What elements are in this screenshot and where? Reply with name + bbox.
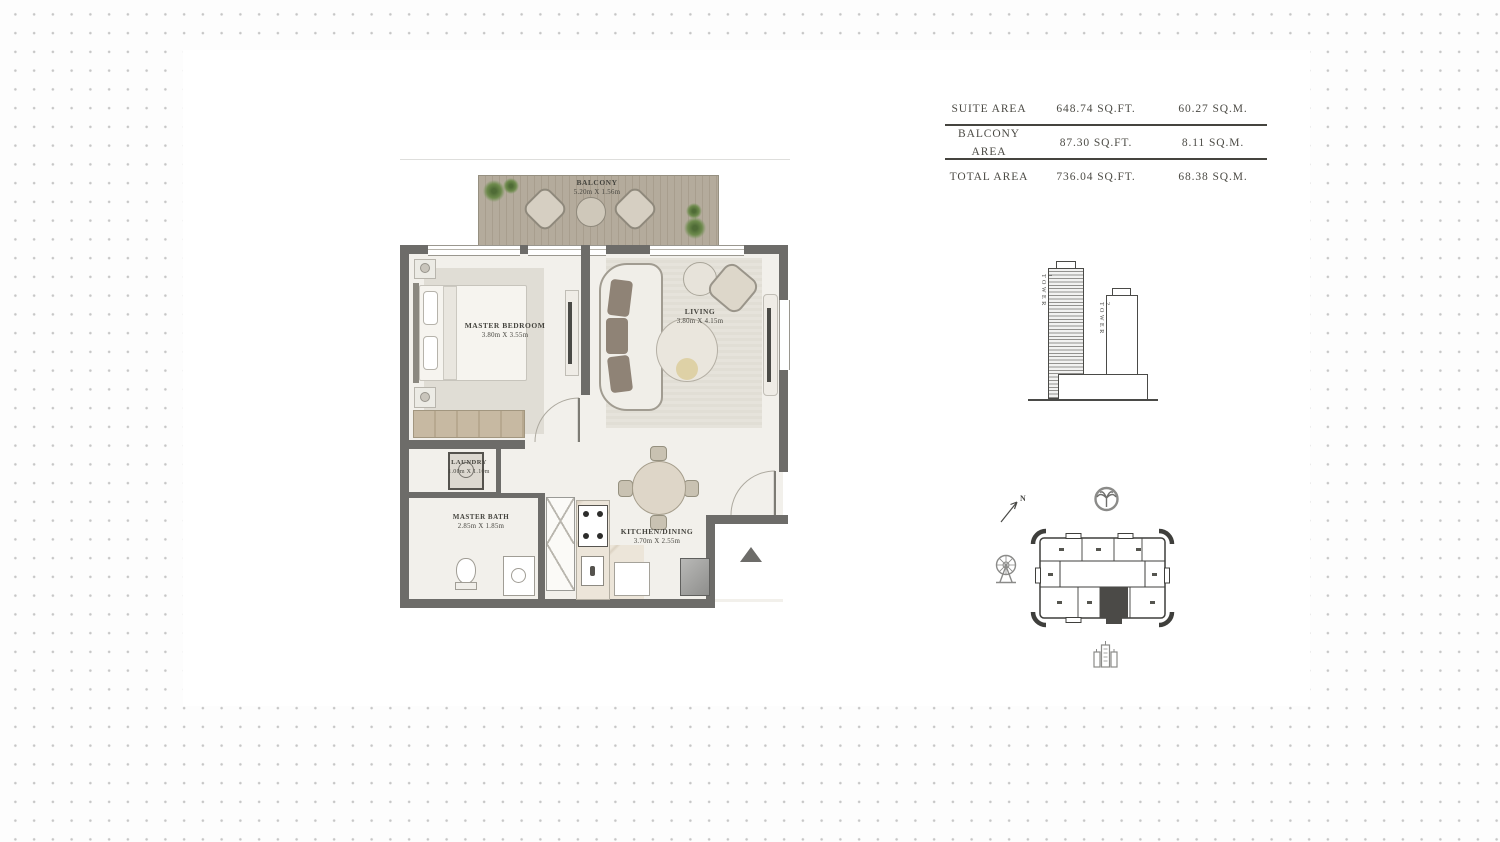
- wall-entry-top: [706, 515, 788, 524]
- room-dims: 3.80m X 3.55m: [465, 331, 546, 340]
- wash-basin: [511, 568, 526, 583]
- wall-left: [400, 245, 409, 608]
- bed-throw: [443, 286, 457, 380]
- shower: [546, 497, 575, 591]
- door-arc: [534, 397, 580, 443]
- dining-chair: [684, 480, 699, 497]
- room-dims: 3.70m X 2.55m: [621, 537, 693, 546]
- plant: [483, 180, 505, 202]
- room-name: BALCONY: [576, 178, 617, 187]
- area-sqm: 60.27 SQ.M.: [1178, 103, 1247, 115]
- stove-burner: [583, 511, 589, 517]
- master-bath-label: MASTER BATH 2.85m X 1.85m: [453, 513, 510, 532]
- table-lamp: [420, 263, 430, 273]
- room-name: LAUNDRY: [451, 459, 487, 466]
- toilet: [456, 558, 476, 584]
- wall-bath-top: [409, 493, 545, 498]
- room-name: LIVING: [685, 307, 716, 316]
- pillow: [423, 336, 438, 370]
- area-sqft: 648.74 SQ.FT.: [1056, 103, 1135, 115]
- master-bedroom-label: MASTER BEDROOM 3.80m X 3.55m: [465, 321, 546, 340]
- room-name: MASTER BATH: [453, 513, 510, 521]
- area-sqft: 736.04 SQ.FT.: [1056, 171, 1135, 183]
- room-dims: 1.00m X 1.10m: [448, 468, 490, 476]
- table-lamp: [420, 392, 430, 402]
- dining-chair: [650, 446, 667, 461]
- sofa-cushion: [606, 318, 628, 354]
- room-dims: 5.20m X 1.56m: [574, 188, 621, 197]
- coffee-table-accent: [676, 358, 698, 380]
- table-row: SUITE AREA 648.74 SQ.FT. 60.27 SQ.M.: [945, 92, 1267, 124]
- building-icon: [1092, 639, 1118, 669]
- room-name: MASTER BEDROOM: [465, 321, 546, 330]
- room-dims: 3.80m X 4.15m: [677, 317, 724, 326]
- kitchen-cabinet: [614, 562, 650, 596]
- north-label: N: [1020, 494, 1026, 503]
- area-table: SUITE AREA 648.74 SQ.FT. 60.27 SQ.M. BAL…: [945, 92, 1267, 192]
- pillow: [423, 291, 438, 325]
- wall-bedroom-bottom: [400, 440, 525, 449]
- window: [428, 245, 520, 256]
- table-row: BALCONY AREA 87.30 SQ.FT. 8.11 SQ.M.: [945, 126, 1267, 158]
- kitchen-dining-label: KITCHEN/DINING 3.70m X 2.55m: [621, 527, 693, 546]
- wall-laundry-right: [496, 449, 501, 495]
- floor-plate: [1030, 528, 1175, 628]
- dining-chair: [618, 480, 633, 497]
- plan-top-ruler: [400, 159, 790, 160]
- window: [779, 300, 790, 370]
- tower-1-crown: [1056, 261, 1076, 269]
- bedroom-tv: [568, 302, 572, 364]
- area-sqm: 8.11 SQ.M.: [1182, 137, 1244, 149]
- balcony-door: [528, 245, 606, 256]
- ground-line: [1028, 399, 1158, 401]
- wardrobe: [413, 410, 525, 438]
- highlighted-unit: [1100, 587, 1128, 618]
- area-label: TOTAL AREA: [950, 171, 1029, 183]
- podium: [1058, 374, 1148, 401]
- plant: [684, 217, 706, 239]
- window: [650, 245, 744, 256]
- wall-bedroom-living: [581, 245, 590, 395]
- stove: [578, 505, 608, 547]
- dining-table: [632, 461, 686, 515]
- palm-icon: [1093, 486, 1120, 514]
- floor-plan-page: BALCONY 5.20m X 1.56m: [0, 0, 1500, 842]
- fridge: [680, 558, 710, 596]
- table-row: TOTAL AREA 736.04 SQ.FT. 68.38 SQ.M.: [945, 160, 1267, 192]
- area-label: BALCONY AREA: [958, 128, 1020, 158]
- plant: [503, 178, 519, 194]
- ferris-wheel-icon: [993, 553, 1019, 586]
- laundry-label: LAUNDRY 1.00m X 1.10m: [448, 459, 490, 476]
- area-sqm: 68.38 SQ.M.: [1178, 171, 1247, 183]
- toilet-tank: [455, 582, 477, 590]
- sofa-cushion: [607, 279, 633, 317]
- sink-faucet: [590, 566, 595, 576]
- living-tv: [767, 308, 771, 382]
- tower-2-crown: [1112, 288, 1131, 296]
- tower-1-label: TOWER 1: [1040, 274, 1052, 308]
- living-label: LIVING 3.80m X 4.15m: [677, 307, 724, 326]
- room-dims: 2.85m X 1.85m: [453, 522, 510, 531]
- sofa-cushion: [607, 355, 633, 393]
- wall-bath-kitchen: [538, 495, 545, 608]
- wall-bottom: [400, 599, 715, 608]
- entry-arrow: [740, 547, 762, 562]
- door-arc: [730, 470, 776, 516]
- balcony-table: [576, 197, 606, 227]
- area-sqft: 87.30 SQ.FT.: [1060, 137, 1133, 149]
- area-label: SUITE AREA: [951, 103, 1026, 115]
- balcony-label: BALCONY 5.20m X 1.56m: [574, 178, 621, 197]
- tower-2-label: TOWER 2: [1098, 302, 1110, 336]
- room-name: KITCHEN/DINING: [621, 527, 693, 536]
